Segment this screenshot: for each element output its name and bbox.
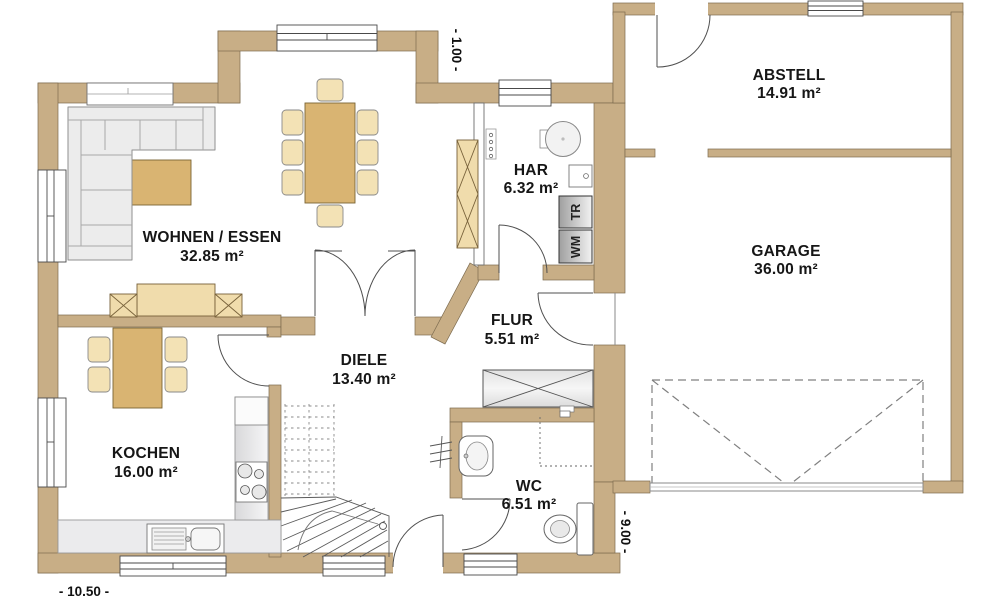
dining-chair: [317, 205, 343, 227]
dining-chair: [357, 170, 378, 195]
shower-area-dashes: [540, 417, 593, 467]
wall-kitchen-top: [58, 315, 281, 327]
window-living-left: [38, 170, 66, 262]
room-area-garage: 36.00 m²: [754, 261, 818, 278]
wall-diagonal: [431, 263, 484, 344]
garage-clearance-dashes: [652, 380, 923, 486]
room-area-flur: 5.51 m²: [485, 331, 540, 348]
floor-plan-canvas: WOHNEN / ESSEN 32.85 m² KOCHEN 16.00 m² …: [0, 0, 1000, 600]
kitchen-fridge: [235, 397, 268, 425]
dining-table: [305, 103, 355, 203]
dim-label-top: - 1.00 -: [449, 29, 464, 72]
window-bay-top: [277, 25, 377, 51]
tall-cabinet: [457, 140, 478, 248]
dining-chair: [357, 110, 378, 135]
wall-har-bottom-left: [478, 265, 499, 280]
room-label-flur: FLUR: [491, 312, 533, 329]
wc-sink: [459, 436, 493, 476]
dining-chair: [282, 140, 303, 165]
wall-garage-bottom-left: [613, 481, 650, 493]
wall-diele-top-left: [281, 317, 315, 335]
wall-abstell-divider-right: [708, 149, 951, 157]
dining-chair: [357, 140, 378, 165]
window-har-top: [499, 80, 551, 106]
window-kitchen-left: [38, 398, 66, 487]
wall-right-lower: [594, 482, 615, 553]
room-area-kochen: 16.00 m²: [114, 464, 178, 481]
room-area-har: 6.32 m²: [504, 180, 559, 197]
room-area-wohnen: 32.85 m²: [180, 248, 244, 265]
tv-board: [87, 83, 173, 105]
wall-abstell-divider-left: [625, 149, 655, 157]
entrance-opening: [393, 552, 443, 574]
wall-garage-left: [613, 12, 625, 103]
window-wc-bottom: [464, 554, 517, 575]
room-label-wohnen: WOHNEN / ESSEN: [143, 229, 282, 246]
window-abstell-top: [808, 1, 863, 16]
window-kitchen-bottom: [120, 556, 226, 576]
kitchen-chair: [165, 367, 187, 392]
wall-garage-bottom-right: [923, 481, 963, 493]
dryer-label: TR: [569, 204, 583, 221]
kitchen-chair: [88, 367, 110, 392]
room-label-garage: GARAGE: [751, 243, 820, 260]
room-area-wc: 6.51 m²: [502, 496, 557, 513]
window-stairs-bottom: [323, 556, 385, 576]
dim-label-right: - 9.00 -: [618, 511, 633, 554]
door-har: [499, 225, 547, 273]
boiler-center: [561, 137, 564, 140]
dining-chair: [317, 79, 343, 101]
washing-machine-label: WM: [569, 236, 583, 258]
sideboard: [110, 284, 242, 317]
wc-vent: [560, 411, 570, 417]
room-label-kochen: KOCHEN: [112, 445, 180, 462]
room-label-abstell: ABSTELL: [753, 67, 826, 84]
dining-chair: [282, 170, 303, 195]
wall-party-lower: [594, 345, 625, 482]
kitchen-chair: [88, 337, 110, 362]
wall-left: [38, 83, 58, 573]
room-label-har: HAR: [514, 162, 548, 179]
wc-sink-plumbing: [430, 436, 452, 468]
door-flur-garage: [538, 293, 593, 345]
door-kitchen: [218, 335, 269, 386]
room-label-diele: DIELE: [341, 352, 388, 369]
stairs-upper-flight-dashes: [285, 404, 334, 496]
floor-plan: WOHNEN / ESSEN 32.85 m² KOCHEN 16.00 m² …: [0, 0, 1000, 600]
stove: [236, 462, 267, 502]
room-label-wc: WC: [516, 478, 542, 495]
double-door-living: [315, 250, 415, 316]
room-area-diele: 13.40 m²: [332, 371, 396, 388]
wall-party-upper: [594, 103, 625, 293]
dim-label-bottom: - 10.50 -: [59, 584, 109, 599]
wall-har-bottom-right: [543, 265, 594, 280]
wall-kitchen-jamb: [267, 327, 281, 337]
garage-door: [650, 483, 923, 491]
wall-garage-right: [951, 12, 963, 482]
wardrobe: [483, 370, 593, 412]
kitchen-chair: [165, 337, 187, 362]
coffee-table: [125, 160, 191, 205]
room-area-abstell: 14.91 m²: [757, 85, 821, 102]
kitchen-table: [113, 328, 162, 408]
dining-chair: [282, 110, 303, 135]
abstell-opening: [655, 1, 708, 16]
kitchen-sink: [147, 524, 224, 553]
door-abstell: [657, 15, 710, 67]
stairs: [281, 404, 389, 557]
